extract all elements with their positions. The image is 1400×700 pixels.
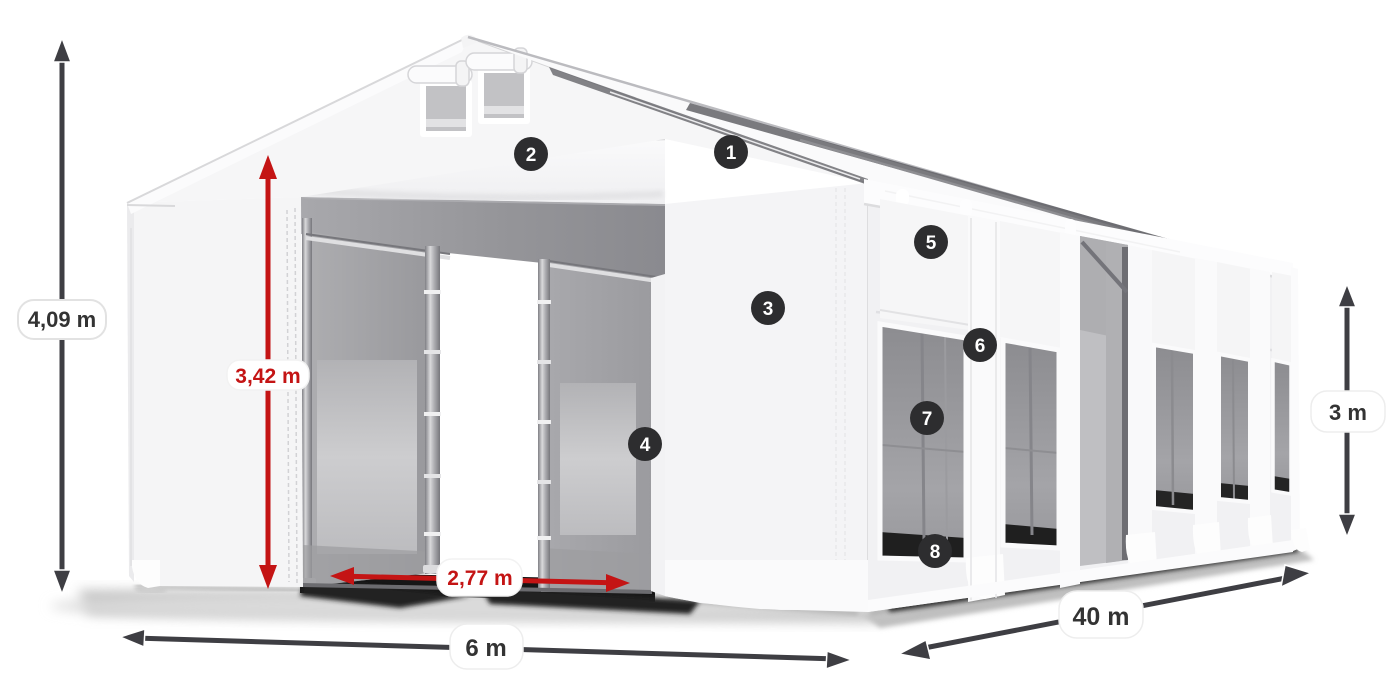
svg-text:6 m: 6 m	[465, 635, 506, 662]
svg-text:2,77 m: 2,77 m	[447, 567, 512, 590]
svg-text:5: 5	[926, 233, 937, 254]
svg-text:4: 4	[640, 435, 651, 456]
svg-text:2: 2	[526, 145, 537, 166]
svg-text:4,09 m: 4,09 m	[28, 307, 97, 332]
svg-text:3: 3	[763, 299, 774, 320]
svg-text:3,42 m: 3,42 m	[235, 365, 300, 388]
svg-text:40 m: 40 m	[1073, 603, 1130, 631]
svg-text:3 m: 3 m	[1329, 400, 1367, 425]
svg-text:1: 1	[726, 143, 737, 164]
svg-text:7: 7	[922, 409, 933, 430]
svg-text:8: 8	[930, 542, 941, 563]
svg-text:6: 6	[975, 336, 986, 357]
